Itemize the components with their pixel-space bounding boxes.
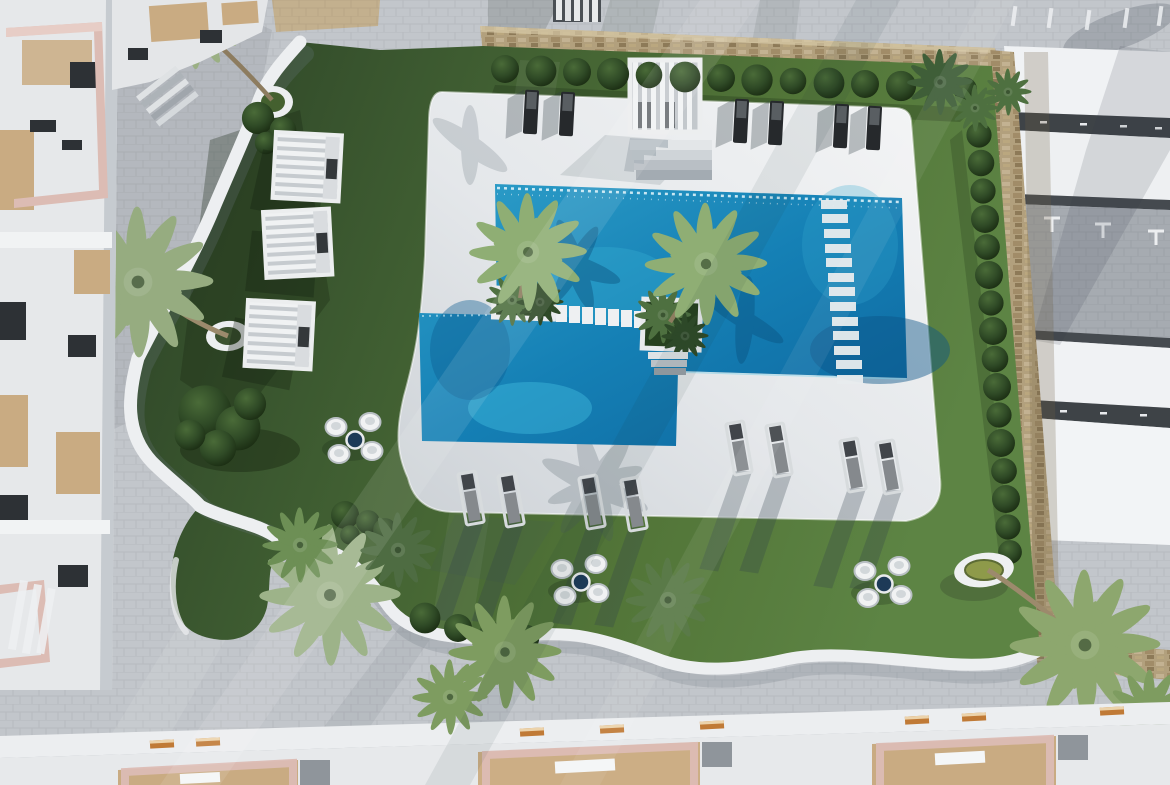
timber-deck: [56, 432, 100, 494]
tree-shadow-top-2: [600, 0, 660, 36]
scene-render: [0, 0, 1170, 785]
timber-deck: [221, 1, 258, 25]
balcony-divider: [0, 520, 110, 534]
west-buildings: [0, 0, 118, 690]
balcony-divider: [0, 232, 112, 248]
timber-deck: [74, 250, 110, 294]
stairs-north: [553, 0, 601, 22]
aerial-pool-render: [0, 0, 1170, 785]
tree-shadow-top-3: [752, 0, 800, 44]
timber-deck: [0, 395, 28, 467]
